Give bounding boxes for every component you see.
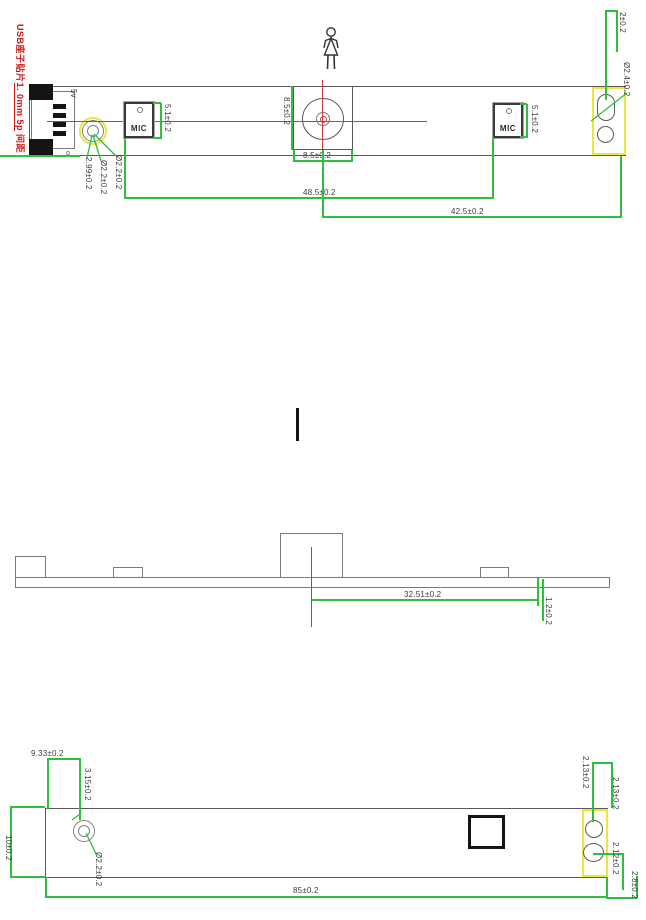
- drawing-canvas: { "colors": { "dim_line": "#2fbf3f", "ce…: [0, 0, 646, 920]
- leader-lines: [0, 0, 646, 920]
